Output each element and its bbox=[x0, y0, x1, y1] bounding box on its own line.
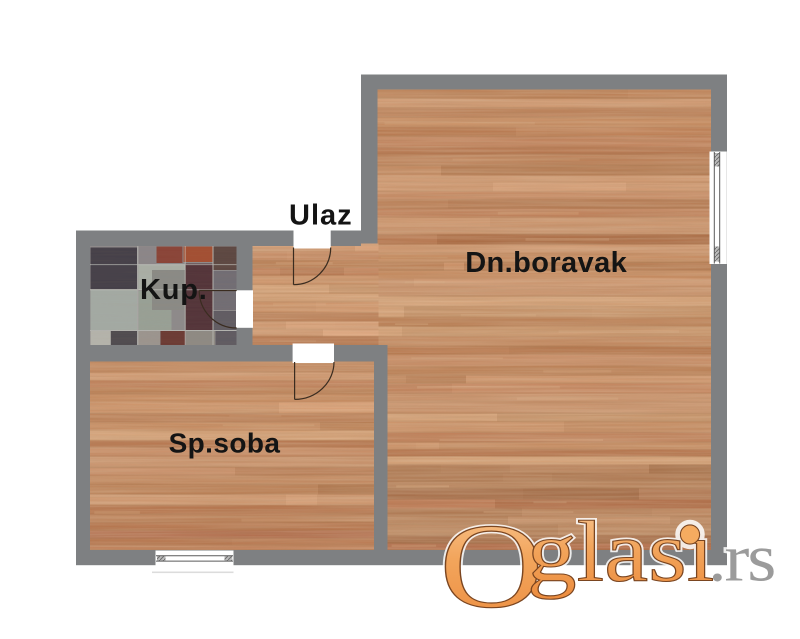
svg-text:glası: glası bbox=[527, 504, 714, 600]
svg-text:.rs: .rs bbox=[708, 521, 774, 596]
svg-text:Kup.: Kup. bbox=[140, 274, 208, 306]
svg-text:Sp.soba: Sp.soba bbox=[169, 428, 281, 459]
svg-text:Dn.boravak: Dn.boravak bbox=[465, 247, 627, 279]
svg-text:Ulaz: Ulaz bbox=[289, 200, 353, 232]
